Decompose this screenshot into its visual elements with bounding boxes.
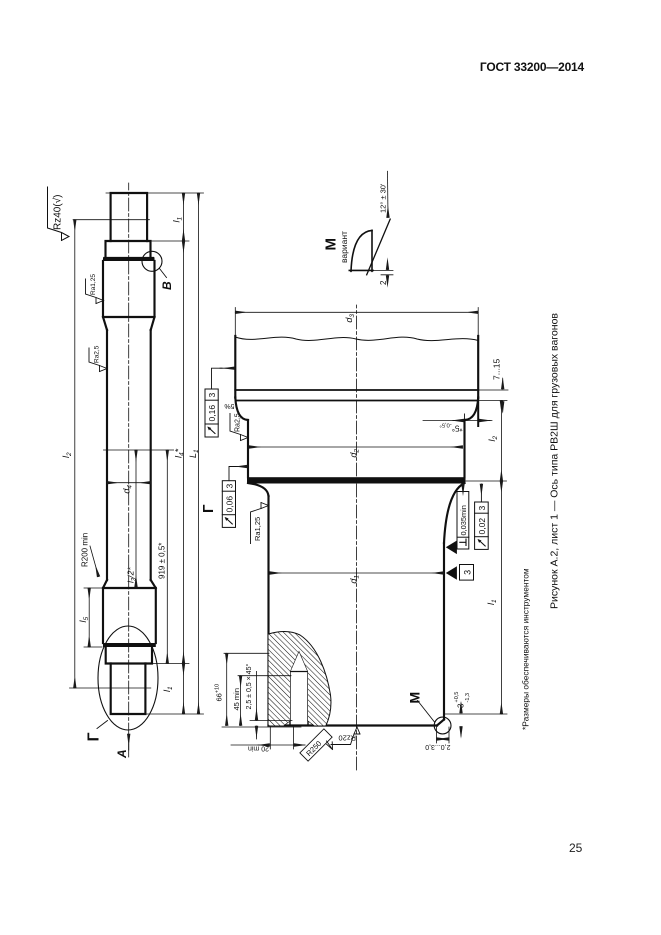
svg-text:М: М: [323, 238, 340, 251]
svg-text:М: М: [407, 692, 423, 704]
svg-text:20 min: 20 min: [248, 745, 269, 752]
svg-text:d4: d4: [122, 485, 134, 494]
svg-text:*5°-0,5°: *5°-0,5°: [439, 422, 462, 433]
svg-text:d3: d3: [344, 314, 356, 323]
svg-text:3: 3: [207, 393, 217, 398]
svg-text:Рисунок А.2, лист 1 — Ось типа: Рисунок А.2, лист 1 — Ось типа РВ2Ш для …: [549, 313, 561, 609]
svg-text:3: 3: [477, 506, 487, 511]
svg-text:919 ± 0,5*: 919 ± 0,5*: [158, 543, 167, 579]
svg-text:l2: l2: [61, 452, 73, 458]
svg-text:3: 3: [463, 570, 473, 575]
svg-text:Ra2,5: Ra2,5: [94, 345, 101, 363]
svg-text:Ra1,25: Ra1,25: [253, 517, 262, 541]
svg-text:Ra2,5: Ra2,5: [235, 413, 242, 432]
svg-text:12° ± 30': 12° ± 30': [379, 183, 388, 213]
svg-text:0,06: 0,06: [224, 496, 234, 513]
svg-text:3: 3: [224, 484, 234, 489]
svg-text:+0,5: +0,5: [454, 692, 460, 703]
svg-text:l1: l1: [486, 599, 498, 605]
svg-text:*Размеры обеспечиваются инстру: *Размеры обеспечиваются инструментом: [521, 568, 531, 730]
svg-text:l1: l1: [162, 686, 174, 692]
svg-text:Г: Г: [200, 504, 217, 513]
svg-text:Rz20: Rz20: [338, 734, 356, 743]
svg-text:0,02: 0,02: [477, 518, 487, 535]
svg-text:0,035min: 0,035min: [459, 505, 468, 535]
svg-text:45 min: 45 min: [232, 688, 241, 711]
svg-text:5%: 5%: [224, 402, 234, 409]
svg-text:l5: l5: [78, 617, 90, 623]
svg-text:Rz40(√): Rz40(√): [52, 195, 64, 231]
svg-text:l2: l2: [487, 436, 499, 442]
svg-text:2: 2: [379, 280, 388, 285]
svg-text:0,16: 0,16: [207, 405, 217, 422]
svg-text:А: А: [115, 749, 129, 759]
svg-text:R200 min: R200 min: [81, 533, 90, 567]
svg-text:d2: d2: [349, 449, 361, 458]
svg-text:вариант: вариант: [339, 231, 349, 263]
svg-text:3: 3: [457, 703, 466, 708]
svg-text:l1: l1: [172, 217, 184, 223]
svg-text:-1,3: -1,3: [465, 693, 471, 702]
svg-text:7...15: 7...15: [492, 358, 502, 380]
svg-text:2,0...3,0: 2,0...3,0: [425, 743, 450, 750]
svg-text:d1: d1: [349, 575, 361, 584]
svg-text:В: В: [160, 281, 174, 290]
svg-text:Ra1,25: Ra1,25: [90, 274, 97, 295]
svg-text:Г: Г: [86, 732, 103, 741]
svg-text:2,5 ± 0,5 × 45°: 2,5 ± 0,5 × 45°: [245, 664, 253, 710]
svg-text:66+10: 66+10: [215, 684, 224, 702]
